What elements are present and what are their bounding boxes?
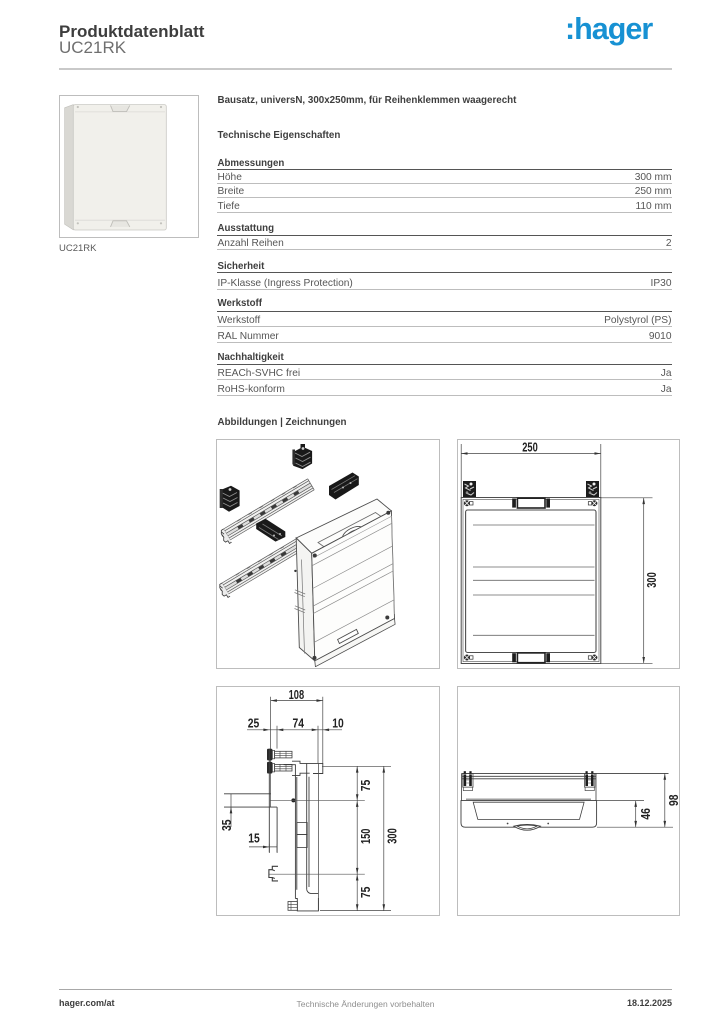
svg-text:300: 300	[385, 828, 400, 844]
svg-text:300: 300	[644, 572, 659, 588]
svg-text:108: 108	[289, 687, 305, 702]
svg-text:75: 75	[358, 887, 373, 899]
svg-text:35: 35	[219, 820, 234, 832]
svg-text::hager: :hager	[566, 12, 653, 46]
svg-text:150: 150	[358, 829, 373, 845]
svg-text:250: 250	[522, 440, 538, 455]
svg-text:98: 98	[666, 795, 679, 807]
svg-text:75: 75	[358, 780, 373, 792]
svg-text:74: 74	[293, 716, 305, 731]
svg-text:25: 25	[248, 716, 260, 731]
svg-text:15: 15	[248, 831, 260, 846]
svg-text:46: 46	[638, 808, 653, 820]
svg-text:10: 10	[332, 716, 344, 731]
